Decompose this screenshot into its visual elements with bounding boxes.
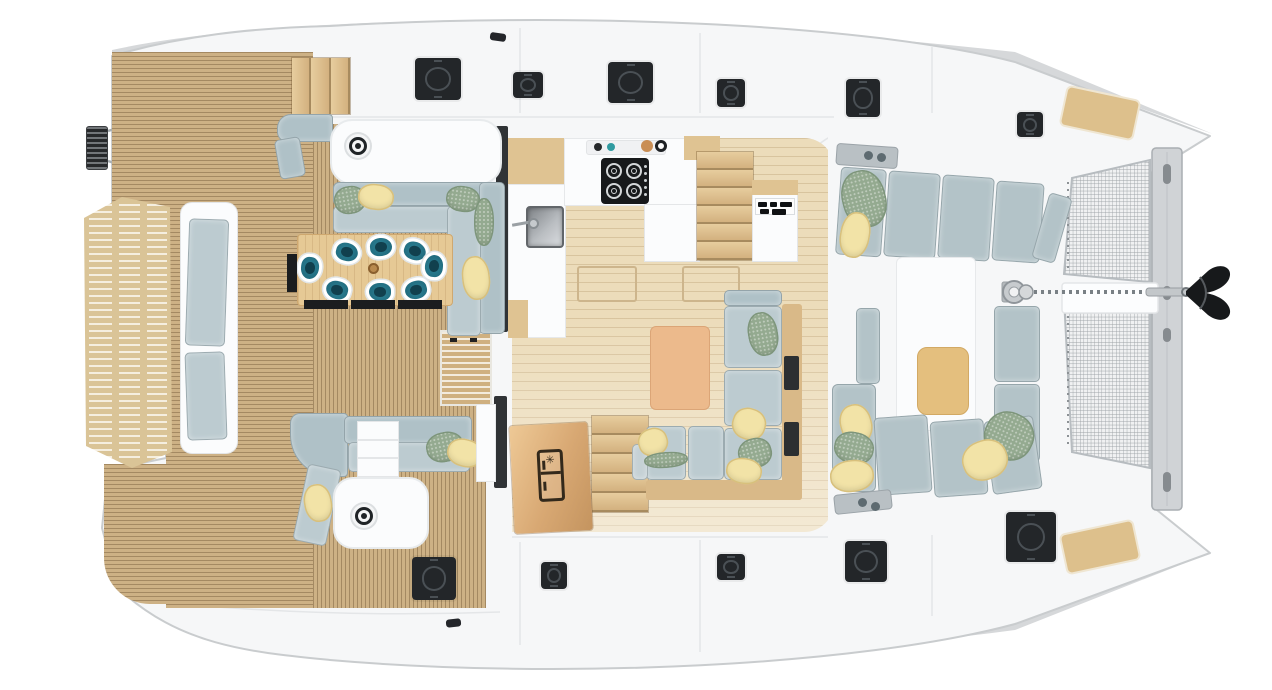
utility-knob-wood [641, 140, 653, 152]
trim-vent-1 [784, 356, 799, 390]
stove-knob [644, 186, 647, 189]
stair-tread [697, 224, 753, 242]
louver-vent-mark [470, 338, 477, 342]
cockpit-side-panel [476, 404, 496, 482]
hatch-latch-icon [524, 94, 532, 96]
galley-counter-base [508, 300, 528, 338]
stair-tread [592, 416, 648, 435]
deck-hatch-bottom-2 [541, 562, 567, 589]
nav-instrument-slot [760, 209, 769, 214]
saloon-sofa-trim-fwd [782, 304, 802, 500]
stove-burner-icon [606, 163, 622, 179]
hatch-latch-icon [862, 543, 870, 545]
saloon-floor-hatch-aft [577, 266, 637, 302]
sink-faucet [528, 218, 539, 229]
dining-table-centerpiece [368, 263, 379, 274]
utility-knob-ring [655, 140, 667, 152]
plate-center [375, 242, 387, 253]
plate-center [429, 260, 440, 272]
stair-tread [292, 58, 311, 114]
nav-instrument-slot [758, 202, 767, 207]
saloon-sofa-trim-aft [646, 480, 802, 500]
bow-bench-bottom-seg-1 [873, 414, 932, 496]
hatch-latch-icon [627, 64, 635, 66]
deck-hatch-top-3 [608, 62, 653, 103]
swim-platform-louvered [80, 194, 176, 472]
hatch-ring-icon [520, 78, 537, 93]
hatch-ring-icon [422, 566, 447, 590]
hatch-latch-icon [1027, 514, 1035, 516]
trim-vent-2 [784, 422, 799, 456]
deck-hatch-top-6 [1017, 112, 1043, 137]
nav-instrument-slot [772, 209, 786, 215]
cockpit-speaker-top [346, 134, 370, 158]
shelf-line [358, 439, 398, 441]
transom-bench-cushion-aft [185, 218, 229, 346]
saloon-sofa-seat-5 [688, 426, 724, 480]
stove-burner-icon [606, 183, 622, 199]
hatch-ring-icon [723, 85, 739, 101]
stair-tread [697, 152, 753, 170]
deck-hatch-bottom-1 [412, 557, 456, 600]
hatch-latch-icon [859, 81, 867, 83]
plate-center [374, 287, 385, 297]
saloon-coffee-table [650, 326, 710, 410]
bow-console-bottom-cup-2 [871, 502, 880, 511]
stern-grill [86, 126, 108, 170]
platform-slat-separator [112, 202, 119, 464]
hatch-ring-icon [1017, 523, 1045, 551]
cockpit-speaker-bottom [352, 504, 376, 528]
stair-tread [311, 58, 330, 114]
fridge-divider [541, 471, 561, 475]
hatch-latch-icon [550, 585, 558, 587]
stern-steps-deck [104, 464, 184, 604]
stove-knob [644, 165, 647, 168]
hatch-latch-icon [1026, 133, 1034, 135]
stove-burner-icon [626, 183, 642, 199]
hatch-ring-icon [425, 67, 451, 91]
trampoline-bottom [1064, 290, 1150, 468]
transom-bench-cushion-fwd [184, 351, 227, 440]
anchor-icon [1186, 266, 1230, 320]
bow-console-bottom-cup-1 [858, 498, 867, 507]
stove-knob [644, 172, 647, 175]
fridge-freezer-star: ✳ [545, 454, 555, 465]
cockpit-lounge-aft-bottom [333, 477, 429, 549]
hatch-latch-icon [550, 564, 558, 566]
table-side-support [287, 254, 297, 292]
bow-bench-top-seg-2 [883, 170, 941, 259]
catamaran-deck-plan: ✳ [0, 0, 1272, 690]
fridge-tick [543, 482, 546, 491]
stair-tread [697, 188, 753, 206]
hatch-ring-icon [1023, 118, 1038, 132]
bow-bench-left [856, 308, 880, 384]
nav-cabinet-wood-top [752, 180, 798, 195]
deck-hatch-bottom-3 [717, 554, 745, 580]
table-bench-support-1 [304, 300, 348, 309]
nav-instrument-slot [770, 202, 777, 207]
shelf-line [358, 457, 398, 459]
deck-hatch-top-4 [717, 79, 745, 107]
deck-hatch-top-1 [415, 58, 461, 100]
galley-cabinet-aft [508, 138, 566, 184]
cockpit-shelf-console [357, 421, 399, 477]
stove-burner-inner [611, 168, 617, 174]
bow-console-top-cup-1 [864, 151, 873, 160]
stair-tread [697, 206, 753, 224]
trampoline-top [1064, 160, 1150, 282]
hatch-ring-icon [547, 568, 562, 583]
cockpit-louver-cabinet [440, 330, 492, 406]
hatch-latch-icon [1027, 558, 1035, 560]
hatch-latch-icon [727, 556, 735, 558]
deck-hatch-top-5 [846, 79, 880, 117]
midship-cleat-bottom [446, 618, 462, 628]
stove-burner-inner [611, 188, 617, 194]
cockpit-bolster-sage [474, 198, 494, 246]
nav-instrument-panel [755, 198, 795, 215]
hatch-latch-icon [524, 74, 532, 76]
hatch-latch-icon [727, 576, 735, 578]
fridge-icon: ✳ [537, 449, 566, 502]
stair-tread [697, 242, 753, 260]
stove-burner-inner [631, 168, 637, 174]
hatch-ring-icon [723, 560, 739, 575]
stairs-starboard-hull [697, 152, 753, 260]
fridge-tick [542, 461, 545, 470]
nav-instrument-slot [780, 202, 792, 207]
galley-stove [601, 158, 649, 204]
hatch-latch-icon [627, 99, 635, 101]
hatch-latch-icon [862, 578, 870, 580]
stair-tread [592, 493, 648, 512]
hatch-latch-icon [1026, 114, 1034, 116]
stair-tread [697, 170, 753, 188]
hatch-latch-icon [727, 81, 735, 83]
deck-hatch-top-2 [513, 72, 543, 98]
hatch-latch-icon [434, 96, 442, 98]
hatch-ring-icon [854, 550, 878, 573]
hatch-latch-icon [430, 559, 438, 561]
bow-crossbeam [1152, 148, 1182, 510]
bow-bench-right-1 [994, 306, 1040, 382]
plate-center [305, 262, 316, 274]
platform-slat-separator [140, 202, 147, 464]
saloon-sofa-back-top [724, 290, 782, 306]
hatch-latch-icon [434, 60, 442, 62]
deck-hatch-bottom-4 [845, 541, 887, 582]
bowsprit-rod [1146, 288, 1192, 296]
flybridge-steps [292, 58, 350, 114]
deck-hatch-bottom-5 [1006, 512, 1056, 562]
bow-console-top-cup-2 [877, 153, 886, 162]
hatch-latch-icon [430, 596, 438, 598]
utility-knob-teal [607, 143, 615, 151]
stove-burner-icon [626, 163, 642, 179]
hatch-latch-icon [859, 113, 867, 115]
louver-vent-mark [450, 338, 457, 342]
galley-fridge: ✳ [509, 422, 593, 534]
galley-island [644, 204, 700, 262]
stove-knob [644, 193, 647, 196]
table-bench-support-3 [398, 300, 442, 309]
speaker-core-icon [361, 513, 367, 519]
speaker-core-icon [355, 143, 361, 149]
stair-tread [331, 58, 350, 114]
hatch-latch-icon [727, 103, 735, 105]
hatch-ring-icon [853, 87, 872, 108]
table-bench-support-2 [351, 300, 395, 309]
stove-knob [644, 179, 647, 182]
platform-slats [89, 204, 167, 462]
stove-burner-inner [631, 188, 637, 194]
anchor-channel [1062, 283, 1158, 313]
bow-bench-top-seg-3 [937, 174, 995, 261]
utility-knob-black [594, 143, 602, 151]
hatch-ring-icon [618, 71, 643, 94]
bow-table [917, 347, 969, 415]
